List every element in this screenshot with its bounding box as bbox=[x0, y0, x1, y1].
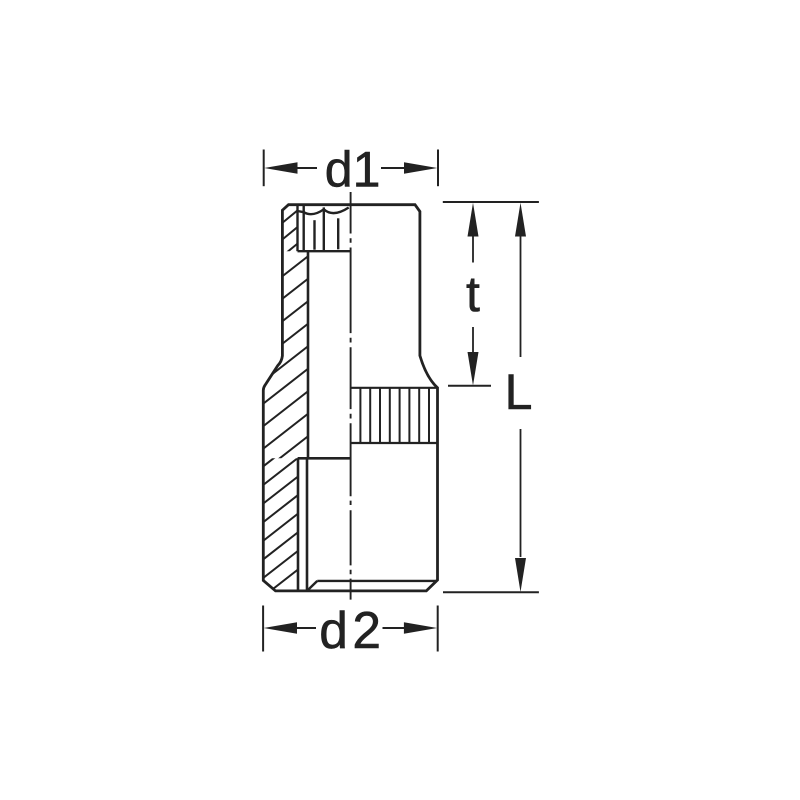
svg-text:t: t bbox=[466, 266, 480, 322]
svg-text:d1: d1 bbox=[325, 141, 381, 197]
svg-text:d: d bbox=[319, 601, 348, 659]
svg-text:L: L bbox=[505, 364, 533, 420]
svg-text:2: 2 bbox=[352, 601, 381, 659]
